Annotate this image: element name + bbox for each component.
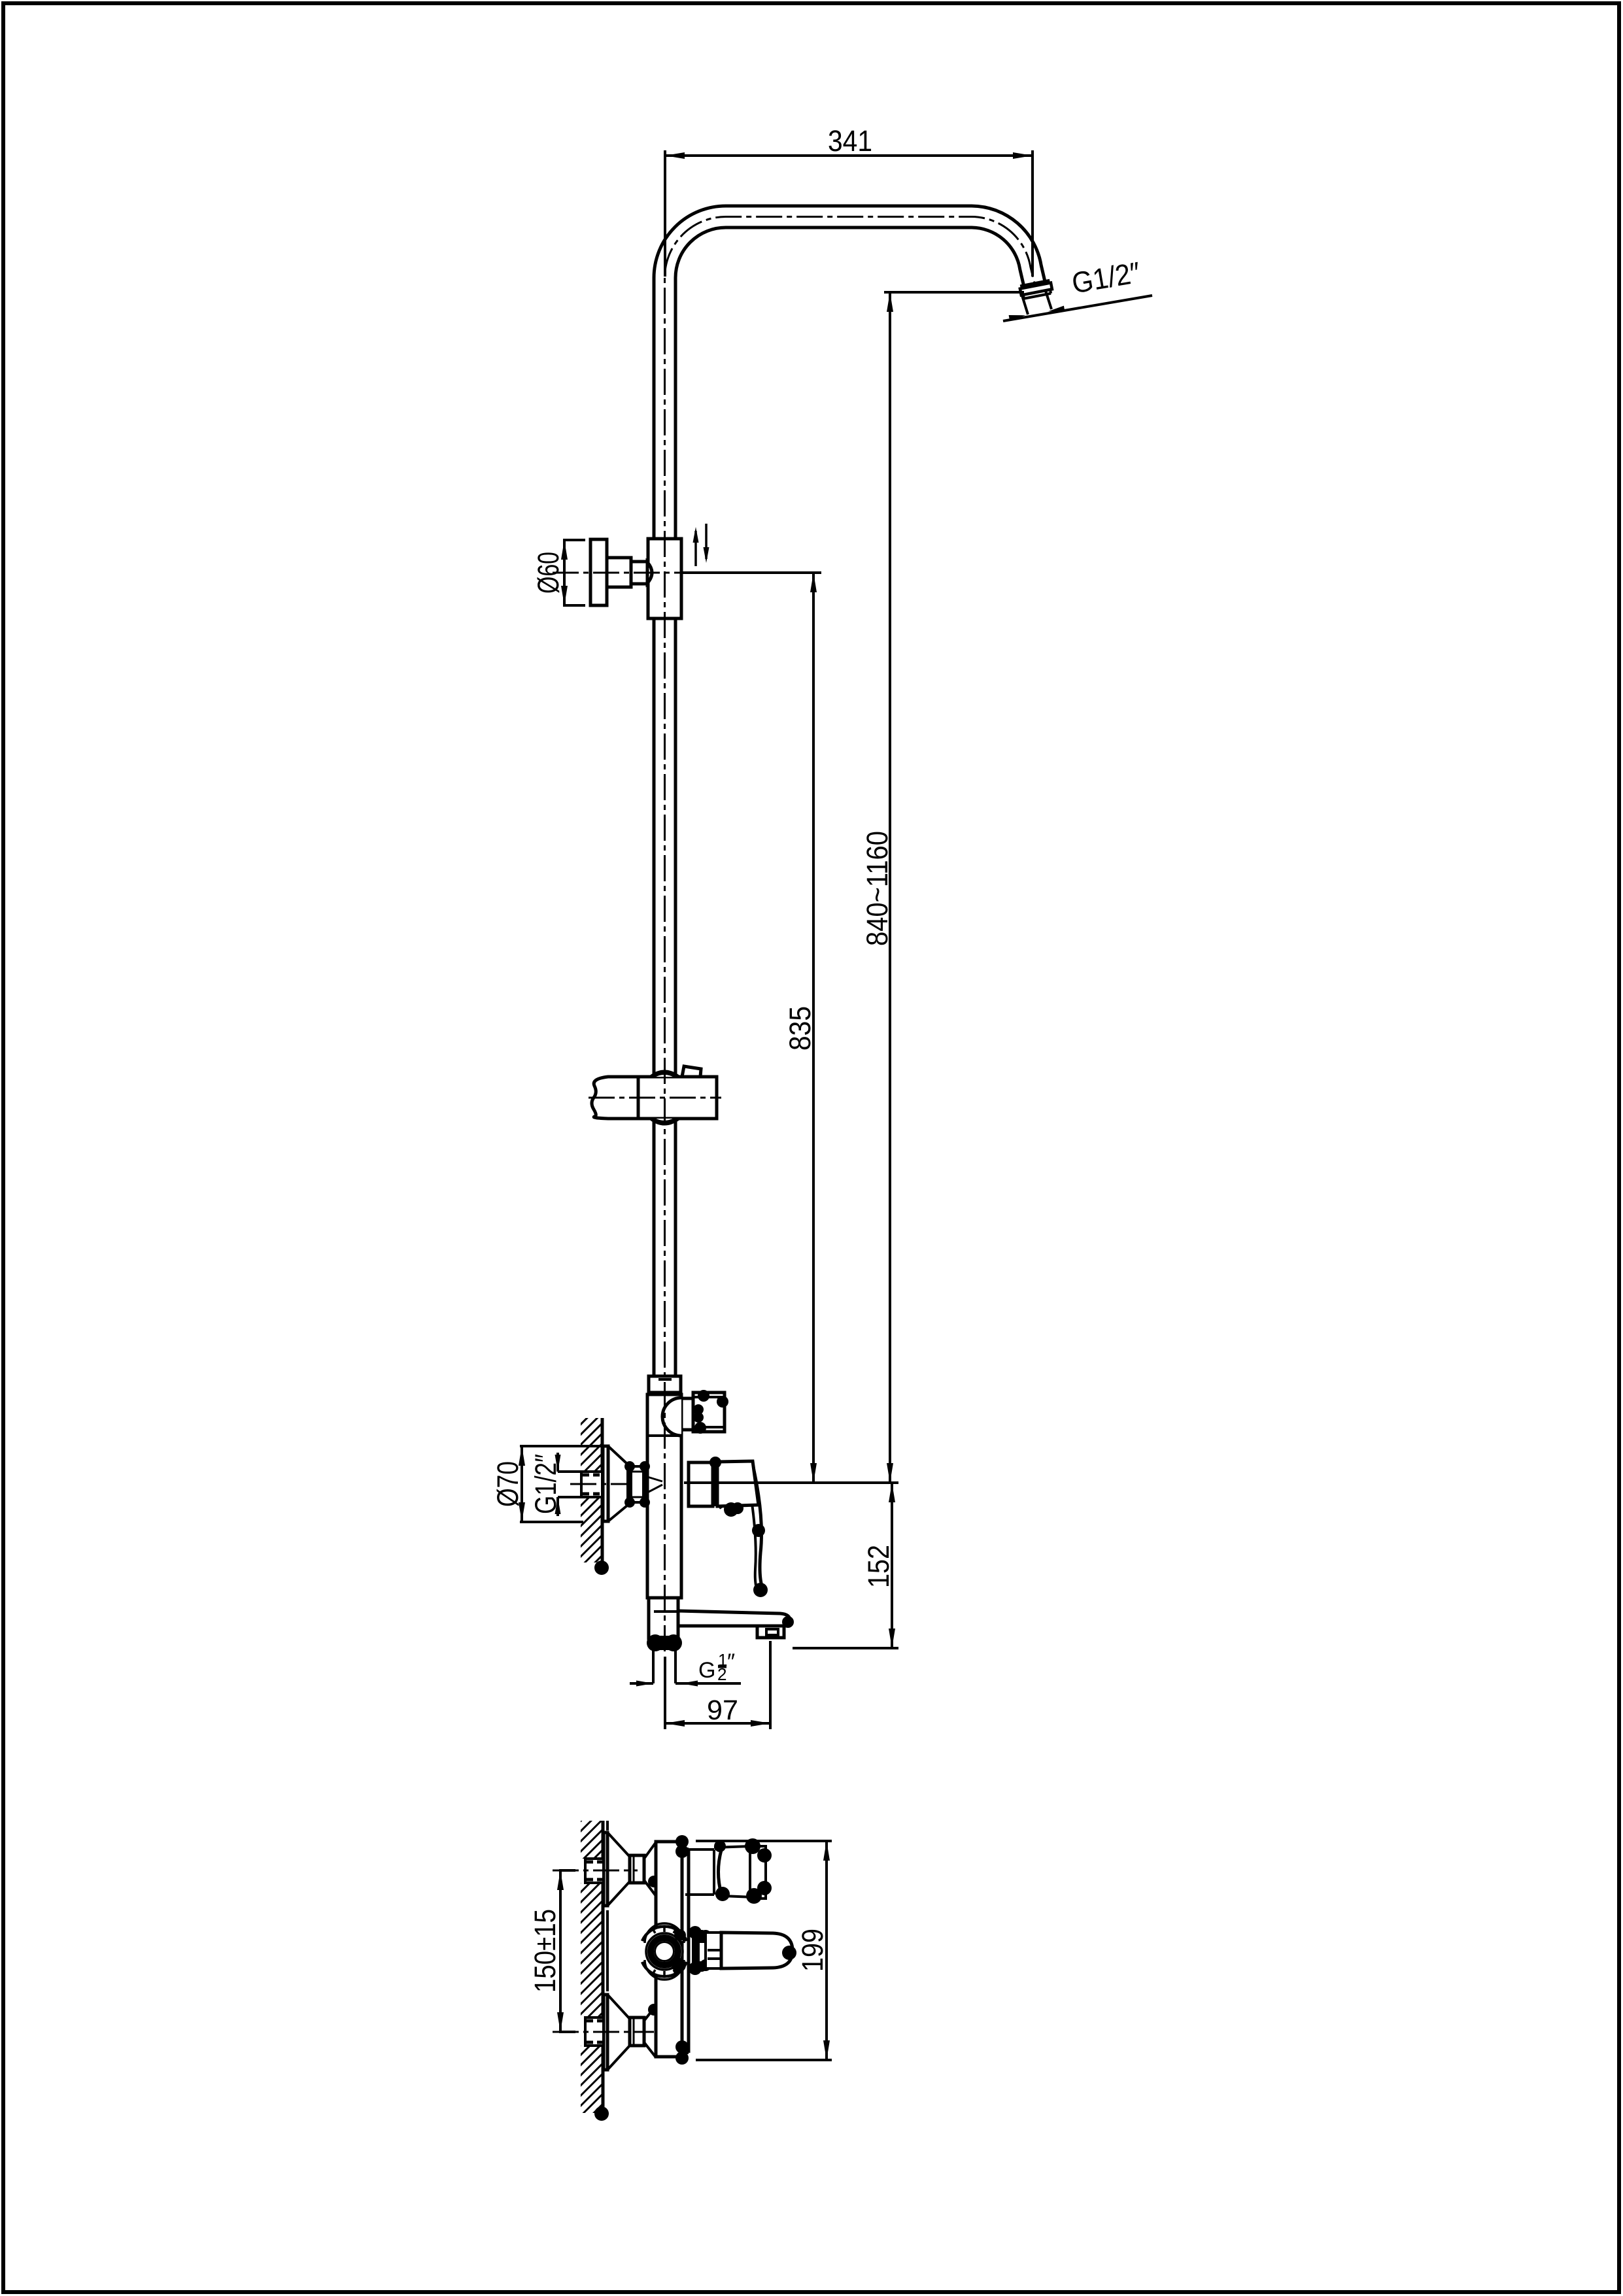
svg-text:″: ″ (727, 1649, 735, 1674)
svg-text:2: 2 (717, 1664, 726, 1684)
svg-text:G1/2″: G1/2″ (529, 1454, 562, 1514)
svg-text:341: 341 (828, 124, 872, 158)
svg-text:835: 835 (783, 1006, 817, 1051)
svg-text:840~1160: 840~1160 (861, 831, 894, 946)
svg-text:199: 199 (796, 1929, 829, 1972)
svg-text:150±15: 150±15 (528, 1909, 562, 1993)
svg-text:G: G (698, 1658, 715, 1683)
svg-text:Ø70: Ø70 (491, 1461, 524, 1507)
svg-text:152: 152 (862, 1545, 895, 1588)
svg-text:97: 97 (707, 1695, 738, 1726)
svg-text:Ø60: Ø60 (532, 552, 565, 594)
